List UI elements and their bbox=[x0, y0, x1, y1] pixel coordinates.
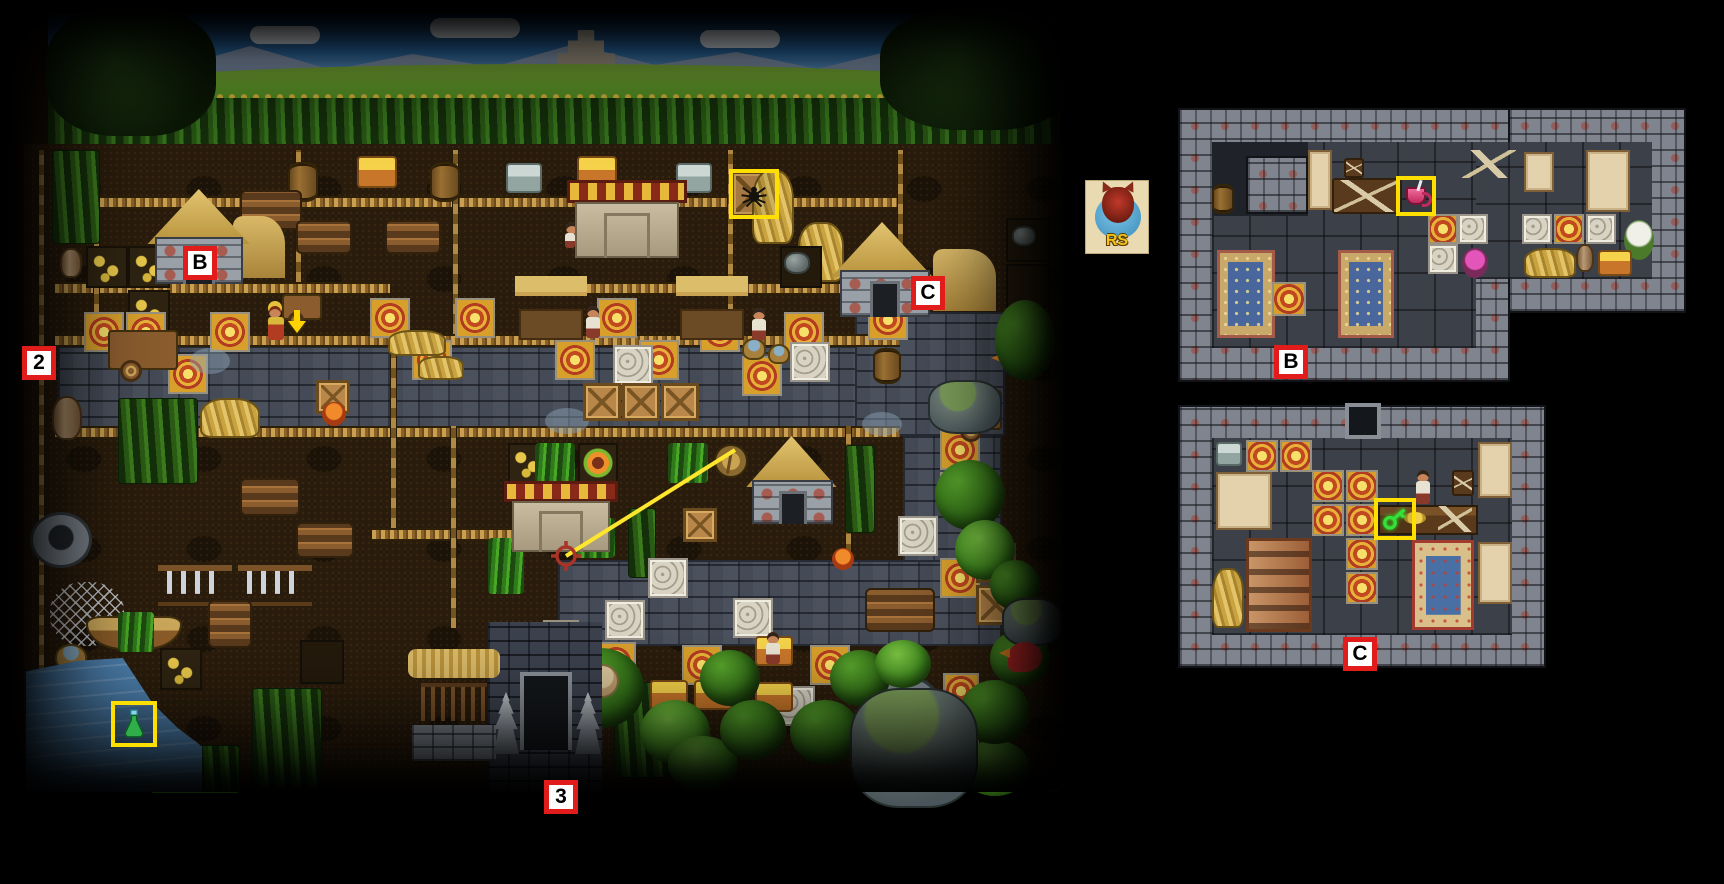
cloud bbox=[250, 26, 320, 44]
cabinet bbox=[1308, 150, 1332, 210]
garden-plot bbox=[160, 648, 202, 690]
corn-patch bbox=[118, 398, 198, 484]
marker-exit-3: 3 bbox=[544, 780, 578, 814]
carved-tile bbox=[1522, 214, 1552, 244]
tall-basket bbox=[1212, 568, 1244, 628]
hay-cart bbox=[108, 330, 178, 370]
flower-o bbox=[832, 548, 854, 570]
potion-flask-icon bbox=[121, 709, 147, 739]
log-pile bbox=[296, 522, 354, 558]
marker-exit-2: 2 bbox=[22, 346, 56, 380]
cloud bbox=[700, 30, 780, 48]
south-gate-arch bbox=[520, 672, 572, 750]
papaya-tile bbox=[578, 443, 618, 483]
canopy-stone-base bbox=[412, 725, 497, 761]
crate bbox=[683, 508, 717, 542]
hut-mid bbox=[752, 436, 847, 524]
gold-chest bbox=[357, 156, 397, 188]
palm bbox=[875, 640, 931, 688]
market-stall bbox=[515, 276, 587, 340]
level-map-screenshot: RS bbox=[0, 0, 1724, 884]
carved-tile bbox=[898, 516, 938, 556]
temple-gate-mid bbox=[512, 481, 610, 552]
highlight-potion bbox=[111, 701, 157, 747]
temple-ornate-band bbox=[504, 481, 618, 502]
log-pile bbox=[385, 220, 441, 254]
aztec-tile bbox=[1312, 504, 1344, 536]
carved-tile bbox=[648, 558, 688, 598]
garden-plot bbox=[86, 246, 128, 288]
carved-tile bbox=[613, 345, 653, 385]
carved-tile bbox=[1458, 214, 1488, 244]
wood-table bbox=[1332, 178, 1402, 214]
cloud bbox=[430, 18, 520, 38]
carpet bbox=[1338, 250, 1394, 338]
corn-patch bbox=[252, 688, 322, 788]
parrot-icon bbox=[1008, 642, 1042, 672]
spider-icon bbox=[739, 179, 769, 209]
marker-room-b: B bbox=[1274, 345, 1308, 379]
aztec-tile bbox=[1246, 440, 1278, 472]
npc-villager bbox=[750, 308, 768, 340]
temple-door bbox=[539, 511, 582, 552]
market-stall bbox=[676, 276, 748, 340]
yellow-down-arrow bbox=[288, 310, 306, 334]
fish-drying-rack bbox=[238, 558, 312, 606]
wardrobe bbox=[1586, 150, 1630, 212]
aztec-tile bbox=[1312, 470, 1344, 502]
cabinet bbox=[1478, 542, 1512, 604]
aztec-tile bbox=[1346, 572, 1378, 604]
room-b-inner-wall bbox=[1246, 156, 1308, 214]
rock bbox=[784, 252, 810, 274]
bone-pile bbox=[1438, 506, 1472, 532]
marker-building-b: B bbox=[183, 246, 217, 280]
chair bbox=[1452, 470, 1474, 496]
aztec-tile bbox=[1428, 214, 1458, 244]
marker-room-c: C bbox=[1343, 637, 1377, 671]
corn-patch bbox=[52, 150, 100, 244]
fish-drying-rack bbox=[158, 558, 232, 606]
crate bbox=[622, 383, 660, 421]
log-pile bbox=[208, 600, 252, 648]
aztec-tile bbox=[1554, 214, 1584, 244]
tree bbox=[880, 8, 1070, 130]
pink-mug-icon bbox=[1406, 187, 1426, 205]
aztec-tile bbox=[210, 312, 250, 352]
bush bbox=[935, 460, 1005, 530]
hut-door bbox=[779, 491, 808, 524]
tree bbox=[46, 8, 216, 136]
npc-shopkeeper bbox=[1414, 470, 1432, 504]
aztec-tile bbox=[1272, 282, 1306, 316]
jungle-tree bbox=[995, 300, 1055, 380]
desk bbox=[1524, 152, 1554, 192]
temple-door bbox=[604, 213, 650, 258]
carved-tile bbox=[605, 600, 645, 640]
urn bbox=[60, 248, 82, 278]
aztec-tile bbox=[455, 298, 495, 338]
highlight-cup bbox=[1396, 176, 1436, 216]
highlight-spider bbox=[729, 169, 779, 219]
npc-villager bbox=[764, 632, 782, 664]
bush bbox=[700, 650, 760, 706]
puddle bbox=[862, 412, 902, 436]
wheel bbox=[120, 360, 142, 382]
carved-tile bbox=[1586, 214, 1616, 244]
fence-v bbox=[450, 426, 457, 628]
log-pile bbox=[240, 478, 300, 516]
tribal-carpet bbox=[1246, 538, 1312, 632]
crate bbox=[583, 383, 621, 421]
green-key-icon bbox=[1380, 504, 1410, 534]
amphora bbox=[52, 396, 82, 440]
mossy-pillar bbox=[850, 688, 978, 808]
hay-basket bbox=[1524, 248, 1576, 278]
canopy-slats bbox=[421, 683, 487, 721]
thatch-canopy bbox=[408, 649, 500, 761]
cabinet bbox=[1478, 442, 1512, 498]
stone-well bbox=[30, 512, 92, 568]
tool-rack bbox=[1462, 150, 1516, 178]
aztec-tile bbox=[555, 340, 595, 380]
carpet bbox=[1217, 250, 1275, 338]
hay bbox=[200, 398, 260, 438]
barrel bbox=[1212, 184, 1234, 214]
carpet bbox=[1412, 540, 1474, 630]
puddle bbox=[190, 348, 230, 374]
demon-mask-icon bbox=[1102, 187, 1134, 223]
log-pile bbox=[296, 220, 352, 254]
hut-b bbox=[155, 189, 280, 284]
hay bbox=[418, 356, 464, 380]
carved-tile bbox=[790, 342, 830, 382]
darksoil bbox=[300, 640, 344, 684]
hay bbox=[388, 330, 446, 356]
bucket bbox=[742, 338, 766, 360]
bucket bbox=[768, 344, 790, 364]
temple-ornate-band bbox=[567, 180, 688, 203]
canopy-roof bbox=[408, 649, 500, 678]
aztec-tile bbox=[597, 298, 637, 338]
fence-v bbox=[390, 334, 397, 528]
npc-chief bbox=[266, 306, 286, 340]
highlight-key bbox=[1374, 498, 1416, 540]
temple-gate-north bbox=[575, 180, 679, 258]
corn-patch bbox=[845, 445, 875, 533]
chair bbox=[1344, 158, 1364, 178]
marker-building-c: C bbox=[911, 276, 945, 310]
urn bbox=[1576, 244, 1594, 272]
barrel bbox=[873, 348, 901, 384]
rock bbox=[1012, 226, 1036, 246]
mossy-rock bbox=[928, 380, 1002, 434]
bush bbox=[720, 700, 786, 760]
grass-tile bbox=[668, 443, 708, 483]
flower-o bbox=[322, 402, 346, 426]
pink-flowers bbox=[1462, 248, 1488, 278]
hut-door bbox=[870, 281, 900, 317]
grass-tile bbox=[118, 612, 154, 652]
aztec-tile bbox=[1280, 440, 1312, 472]
cabinet bbox=[1216, 472, 1272, 530]
grass-tile bbox=[535, 443, 575, 483]
stone-chest bbox=[1216, 442, 1242, 466]
guide-watermark-icon: RS bbox=[1085, 180, 1149, 254]
mossy-rock bbox=[1002, 598, 1062, 646]
aztec-tile bbox=[1346, 538, 1378, 570]
carved-tile bbox=[1428, 244, 1458, 274]
crate bbox=[661, 383, 699, 421]
stone-chest bbox=[506, 163, 542, 193]
watermark-text: RS bbox=[1086, 232, 1148, 250]
npc-villager bbox=[584, 306, 602, 338]
room-c-door bbox=[1345, 403, 1381, 439]
log-pile bbox=[865, 588, 935, 632]
gold-chest bbox=[1598, 250, 1632, 276]
barrel bbox=[430, 162, 460, 202]
